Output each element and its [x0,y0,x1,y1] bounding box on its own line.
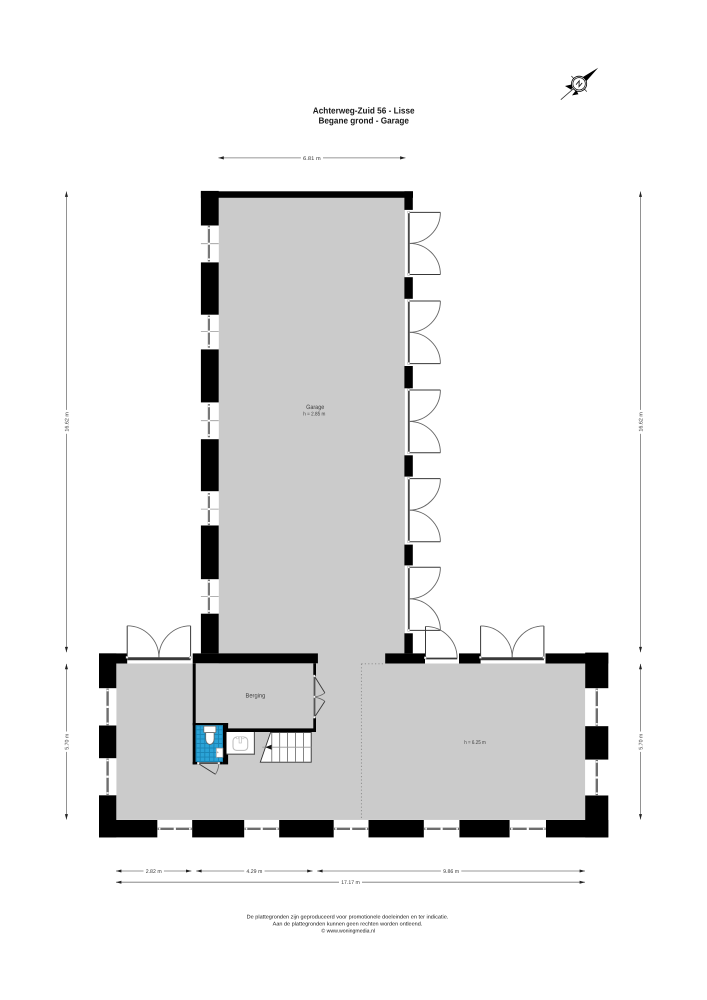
svg-text:2.82 m: 2.82 m [146,869,163,875]
svg-text:Berging: Berging [246,693,266,700]
svg-text:Achterweg-Zuid 56 - Lisse: Achterweg-Zuid 56 - Lisse [313,106,415,116]
svg-text:17.17 m: 17.17 m [341,880,360,886]
svg-text:Garage: Garage [306,404,325,411]
svg-text:4.29 m: 4.29 m [246,869,263,875]
svg-text:9.86 m: 9.86 m [443,869,460,875]
svg-text:Begane grond - Garage: Begane grond - Garage [318,116,409,126]
svg-text:16.62 m: 16.62 m [639,412,645,432]
svg-text:h = 2.85 m: h = 2.85 m [303,411,325,417]
svg-text:6.81 m: 6.81 m [303,156,321,162]
svg-text:5.70 m: 5.70 m [639,733,645,750]
svg-text:h = 6.25 m: h = 6.25 m [464,740,486,746]
svg-text:De plattegronden zijn geproduc: De plattegronden zijn geproduceerd voor … [247,915,449,921]
svg-text:Aan de plattegronden kunnen ge: Aan de plattegronden kunnen geen rechten… [273,922,423,928]
svg-text:5.70 m: 5.70 m [64,733,70,750]
svg-text:© www.woningmedia.nl: © www.woningmedia.nl [321,929,375,935]
svg-text:16.62 m: 16.62 m [64,412,70,432]
